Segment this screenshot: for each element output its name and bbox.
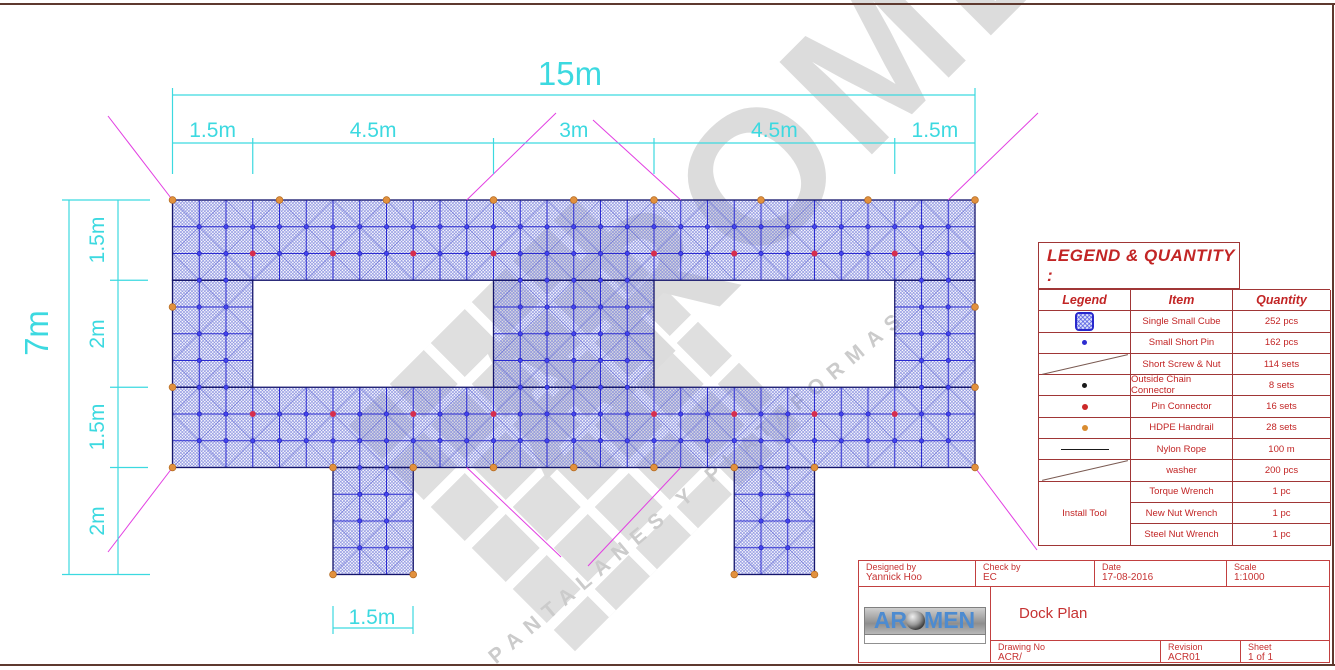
small-short-pin bbox=[759, 465, 763, 469]
small-short-pin bbox=[893, 225, 897, 229]
diag-icon bbox=[1042, 460, 1128, 481]
sheet-border-bottom bbox=[0, 664, 1335, 666]
small-short-pin bbox=[625, 225, 629, 229]
small-short-pin bbox=[812, 439, 816, 443]
legend-header-0: Legend bbox=[1039, 290, 1131, 311]
small-short-pin bbox=[919, 332, 923, 336]
small-short-pin bbox=[652, 439, 656, 443]
small-short-pin bbox=[786, 225, 790, 229]
small-short-pin bbox=[759, 225, 763, 229]
hdpe-handrail-point bbox=[811, 464, 818, 471]
small-short-pin bbox=[384, 439, 388, 443]
hdpe-handrail-point bbox=[383, 197, 390, 204]
small-short-pin bbox=[518, 358, 522, 362]
small-short-pin bbox=[465, 412, 469, 416]
legend-qty: 8 sets bbox=[1233, 375, 1331, 396]
drawing-no-label: Drawing No bbox=[998, 642, 1160, 652]
legend-table: LegendItemQuantitySingle Small Cube252 p… bbox=[1038, 289, 1330, 546]
small-short-pin bbox=[197, 439, 201, 443]
dimension-label: 3m bbox=[559, 119, 588, 142]
small-short-pin bbox=[786, 251, 790, 255]
legend-symbol-cube bbox=[1039, 311, 1131, 332]
small-short-pin bbox=[786, 412, 790, 416]
small-short-pin bbox=[786, 439, 790, 443]
legend-qty: 162 pcs bbox=[1233, 333, 1331, 354]
small-short-pin bbox=[598, 305, 602, 309]
small-short-pin bbox=[518, 278, 522, 282]
hdpe-handrail-point bbox=[972, 304, 979, 311]
pin-connector bbox=[250, 411, 256, 417]
small-short-pin bbox=[277, 225, 281, 229]
small-short-pin bbox=[331, 225, 335, 229]
small-short-pin bbox=[759, 492, 763, 496]
small-short-pin bbox=[197, 385, 201, 389]
hdpe-handrail-point bbox=[731, 571, 738, 578]
designed-by-label: Designed by bbox=[866, 562, 975, 572]
legend-qty: 200 pcs bbox=[1233, 460, 1331, 481]
small-short-pin bbox=[224, 332, 228, 336]
small-short-pin bbox=[358, 225, 362, 229]
small-short-pin bbox=[572, 278, 576, 282]
legend-symbol-h-line bbox=[1039, 439, 1131, 460]
small-short-pin bbox=[277, 412, 281, 416]
small-short-pin bbox=[411, 225, 415, 229]
title-block-info-row: Designed by Yannick Hoo Check by EC Date… bbox=[859, 561, 1329, 587]
small-short-pin bbox=[358, 546, 362, 550]
small-short-pin bbox=[545, 305, 549, 309]
small-short-pin bbox=[839, 439, 843, 443]
dimension-label: 7m bbox=[18, 310, 55, 356]
small-short-pin bbox=[786, 465, 790, 469]
title-block-main: Dock Plan Drawing No ACR/ Revision ACR01… bbox=[991, 587, 1329, 663]
check-by-cell: Check by EC bbox=[976, 561, 1095, 586]
orange-dot-icon bbox=[1082, 425, 1088, 431]
small-short-pin bbox=[251, 439, 255, 443]
small-short-pin bbox=[224, 305, 228, 309]
small-short-pin bbox=[438, 439, 442, 443]
title-block-bottom-row: Drawing No ACR/ Revision ACR01 Sheet 1 o… bbox=[991, 641, 1329, 663]
small-short-pin bbox=[518, 385, 522, 389]
small-short-pin bbox=[197, 412, 201, 416]
h-line-icon bbox=[1061, 449, 1109, 450]
legend-item: Outside Chain Connector bbox=[1131, 375, 1233, 396]
legend-qty: 1 pc bbox=[1233, 503, 1331, 524]
small-short-pin bbox=[197, 251, 201, 255]
pin-connector bbox=[892, 411, 898, 417]
small-short-pin bbox=[705, 412, 709, 416]
small-short-pin bbox=[224, 278, 228, 282]
small-short-pin bbox=[545, 358, 549, 362]
legend-qty: 16 sets bbox=[1233, 396, 1331, 417]
small-short-pin bbox=[679, 251, 683, 255]
designed-by-value: Yannick Hoo bbox=[866, 572, 975, 583]
pin-connector bbox=[491, 251, 497, 257]
small-short-pin bbox=[224, 225, 228, 229]
legend-symbol-diag bbox=[1039, 354, 1131, 375]
small-short-pin bbox=[946, 385, 950, 389]
small-short-pin bbox=[358, 465, 362, 469]
small-short-pin bbox=[759, 251, 763, 255]
small-short-pin bbox=[572, 358, 576, 362]
small-short-pin bbox=[866, 251, 870, 255]
small-short-pin bbox=[893, 439, 897, 443]
small-short-pin bbox=[679, 439, 683, 443]
legend-symbol-blue-dot bbox=[1039, 333, 1131, 354]
small-short-pin bbox=[679, 412, 683, 416]
small-short-pin bbox=[545, 439, 549, 443]
small-short-pin bbox=[625, 385, 629, 389]
small-short-pin bbox=[384, 519, 388, 523]
small-short-pin bbox=[572, 332, 576, 336]
legend-symbol-install-tool: Install Tool bbox=[1039, 482, 1131, 546]
small-short-pin bbox=[545, 225, 549, 229]
small-short-pin bbox=[545, 278, 549, 282]
date-cell: Date 17-08-2016 bbox=[1095, 561, 1227, 586]
legend-qty: 252 pcs bbox=[1233, 311, 1331, 332]
small-short-pin bbox=[572, 225, 576, 229]
pin-connector bbox=[330, 411, 336, 417]
small-short-pin bbox=[946, 278, 950, 282]
small-short-pin bbox=[411, 439, 415, 443]
small-short-pin bbox=[384, 465, 388, 469]
legend-title: LEGEND & QUANTITY : bbox=[1038, 242, 1240, 289]
dimension-label: 4.5m bbox=[751, 119, 798, 142]
small-short-pin bbox=[919, 251, 923, 255]
dimension-label: 1.5m bbox=[86, 404, 109, 451]
small-short-pin bbox=[759, 439, 763, 443]
small-short-pin bbox=[946, 305, 950, 309]
legend-item: New Nut Wrench bbox=[1131, 503, 1233, 524]
small-short-pin bbox=[277, 251, 281, 255]
small-short-pin bbox=[625, 412, 629, 416]
small-short-pin bbox=[759, 519, 763, 523]
small-short-pin bbox=[197, 305, 201, 309]
logo-text-left: AR bbox=[874, 609, 907, 632]
logo-text-right: MEN bbox=[924, 609, 975, 632]
sheet-cell: Sheet 1 of 1 bbox=[1241, 641, 1329, 663]
check-by-value: EC bbox=[983, 572, 1094, 583]
small-short-pin bbox=[625, 439, 629, 443]
small-short-pin bbox=[384, 546, 388, 550]
pin-connector bbox=[491, 411, 497, 417]
small-short-pin bbox=[705, 251, 709, 255]
small-short-pin bbox=[384, 251, 388, 255]
small-short-pin bbox=[705, 439, 709, 443]
small-short-pin bbox=[197, 278, 201, 282]
logo-cell: ARMEN bbox=[859, 587, 991, 663]
small-short-pin bbox=[946, 358, 950, 362]
legend-item: Nylon Rope bbox=[1131, 439, 1233, 460]
hdpe-handrail-point bbox=[490, 464, 497, 471]
small-short-pin bbox=[866, 439, 870, 443]
pin-connector bbox=[410, 251, 416, 257]
small-short-pin bbox=[438, 225, 442, 229]
legend-qty: 100 m bbox=[1233, 439, 1331, 460]
small-short-pin bbox=[946, 412, 950, 416]
diag-icon bbox=[1042, 354, 1128, 375]
sheet-border-top bbox=[0, 3, 1335, 5]
legend-item: Single Small Cube bbox=[1131, 311, 1233, 332]
cube-icon bbox=[1075, 312, 1094, 331]
hdpe-handrail-point bbox=[570, 197, 577, 204]
sheet-label: Sheet bbox=[1248, 642, 1329, 652]
small-short-pin bbox=[545, 251, 549, 255]
hdpe-handrail-point bbox=[169, 384, 176, 391]
hdpe-handrail-point bbox=[758, 197, 765, 204]
small-short-pin bbox=[598, 278, 602, 282]
legend-item: Small Short Pin bbox=[1131, 333, 1233, 354]
logo-underline-strip bbox=[864, 635, 986, 644]
date-value: 17-08-2016 bbox=[1102, 572, 1226, 583]
red-dot-icon bbox=[1082, 404, 1088, 410]
hdpe-handrail-point bbox=[330, 571, 337, 578]
small-short-pin bbox=[839, 251, 843, 255]
cad-sheet: { "watermark": { "brand": "AROMEN", "tag… bbox=[0, 0, 1335, 670]
small-short-pin bbox=[812, 225, 816, 229]
small-short-pin bbox=[197, 225, 201, 229]
small-short-pin bbox=[197, 358, 201, 362]
legend-qty: 114 sets bbox=[1233, 354, 1331, 375]
revision-label: Revision bbox=[1168, 642, 1240, 652]
dimension-label: 1.5m bbox=[189, 119, 236, 142]
small-short-pin bbox=[518, 412, 522, 416]
small-short-pin bbox=[491, 225, 495, 229]
drawing-title: Dock Plan bbox=[991, 587, 1329, 641]
small-short-pin bbox=[304, 225, 308, 229]
pin-connector bbox=[250, 251, 256, 257]
pin-connector bbox=[731, 251, 737, 257]
legend-item: Short Screw & Nut bbox=[1131, 354, 1233, 375]
check-by-label: Check by bbox=[983, 562, 1094, 572]
sheet-border-right bbox=[1332, 3, 1334, 666]
hdpe-handrail-point bbox=[972, 197, 979, 204]
small-short-pin bbox=[358, 439, 362, 443]
small-short-pin bbox=[919, 385, 923, 389]
revision-value: ACR01 bbox=[1168, 652, 1240, 663]
pin-connector bbox=[330, 251, 336, 257]
small-short-pin bbox=[598, 358, 602, 362]
small-short-pin bbox=[866, 412, 870, 416]
small-short-pin bbox=[304, 412, 308, 416]
scale-value: 1:1000 bbox=[1234, 572, 1329, 583]
small-short-pin bbox=[358, 492, 362, 496]
title-block: Designed by Yannick Hoo Check by EC Date… bbox=[858, 560, 1330, 663]
small-short-pin bbox=[866, 225, 870, 229]
aromen-logo: ARMEN bbox=[864, 607, 986, 644]
small-short-pin bbox=[277, 439, 281, 443]
small-short-pin bbox=[705, 225, 709, 229]
legend-header-2: Quantity bbox=[1233, 290, 1331, 311]
dimension-label: 15m bbox=[538, 55, 602, 92]
small-short-pin bbox=[598, 332, 602, 336]
small-short-pin bbox=[598, 225, 602, 229]
small-short-pin bbox=[946, 225, 950, 229]
small-short-pin bbox=[786, 546, 790, 550]
designed-by-cell: Designed by Yannick Hoo bbox=[859, 561, 976, 586]
hdpe-handrail-point bbox=[570, 464, 577, 471]
small-short-pin bbox=[919, 305, 923, 309]
aromen-logo-bar: ARMEN bbox=[864, 607, 986, 635]
small-short-pin bbox=[465, 251, 469, 255]
small-short-pin bbox=[625, 358, 629, 362]
hdpe-handrail-point bbox=[490, 197, 497, 204]
small-short-pin bbox=[919, 278, 923, 282]
small-short-pin bbox=[732, 225, 736, 229]
legend-qty: 1 pc bbox=[1233, 524, 1331, 545]
pin-connector bbox=[410, 411, 416, 417]
scale-label: Scale bbox=[1234, 562, 1329, 572]
hdpe-handrail-point bbox=[972, 464, 979, 471]
hdpe-handrail-point bbox=[410, 571, 417, 578]
dimension-label: 1.5m bbox=[912, 119, 959, 142]
legend-qty: 1 pc bbox=[1233, 482, 1331, 503]
small-short-pin bbox=[652, 225, 656, 229]
small-short-pin bbox=[465, 439, 469, 443]
blue-dot-icon bbox=[1082, 340, 1087, 345]
hdpe-handrail-point bbox=[169, 197, 176, 204]
legend-symbol-black-dot bbox=[1039, 375, 1131, 396]
small-short-pin bbox=[331, 439, 335, 443]
hdpe-handrail-point bbox=[651, 197, 658, 204]
small-short-pin bbox=[465, 225, 469, 229]
pin-connector bbox=[892, 251, 898, 257]
small-short-pin bbox=[358, 251, 362, 255]
small-short-pin bbox=[545, 385, 549, 389]
small-short-pin bbox=[786, 519, 790, 523]
dimension-label: 4.5m bbox=[350, 119, 397, 142]
sheet-value: 1 of 1 bbox=[1248, 652, 1329, 663]
small-short-pin bbox=[598, 251, 602, 255]
small-short-pin bbox=[384, 412, 388, 416]
small-short-pin bbox=[946, 251, 950, 255]
small-short-pin bbox=[919, 412, 923, 416]
legend-symbol-orange-dot bbox=[1039, 418, 1131, 439]
small-short-pin bbox=[625, 278, 629, 282]
small-short-pin bbox=[919, 225, 923, 229]
small-short-pin bbox=[625, 305, 629, 309]
small-short-pin bbox=[358, 412, 362, 416]
small-short-pin bbox=[518, 305, 522, 309]
small-short-pin bbox=[839, 412, 843, 416]
legend-symbol-red-dot bbox=[1039, 396, 1131, 417]
small-short-pin bbox=[919, 358, 923, 362]
hdpe-handrail-point bbox=[811, 571, 818, 578]
small-short-pin bbox=[839, 225, 843, 229]
dimension-label: 1.5m bbox=[86, 217, 109, 264]
small-short-pin bbox=[224, 412, 228, 416]
small-short-pin bbox=[759, 546, 763, 550]
small-short-pin bbox=[545, 412, 549, 416]
small-short-pin bbox=[224, 358, 228, 362]
small-short-pin bbox=[251, 225, 255, 229]
hdpe-handrail-point bbox=[731, 464, 738, 471]
dimension-label: 2m bbox=[86, 319, 109, 348]
small-short-pin bbox=[919, 439, 923, 443]
globe-icon bbox=[906, 611, 925, 630]
small-short-pin bbox=[224, 251, 228, 255]
date-label: Date bbox=[1102, 562, 1226, 572]
small-short-pin bbox=[304, 251, 308, 255]
small-short-pin bbox=[438, 251, 442, 255]
hdpe-handrail-point bbox=[865, 197, 872, 204]
small-short-pin bbox=[572, 439, 576, 443]
small-short-pin bbox=[598, 385, 602, 389]
small-short-pin bbox=[518, 439, 522, 443]
small-short-pin bbox=[786, 492, 790, 496]
small-short-pin bbox=[197, 332, 201, 336]
small-short-pin bbox=[438, 412, 442, 416]
title-block-main-row: ARMEN Dock Plan Drawing No ACR/ Revision… bbox=[859, 587, 1329, 663]
small-short-pin bbox=[518, 332, 522, 336]
small-short-pin bbox=[224, 385, 228, 389]
dimension-label: 1.5m bbox=[349, 606, 396, 629]
small-short-pin bbox=[572, 412, 576, 416]
legend-item: Steel Nut Wrench bbox=[1131, 524, 1233, 545]
hdpe-handrail-point bbox=[169, 304, 176, 311]
small-short-pin bbox=[732, 439, 736, 443]
small-short-pin bbox=[679, 225, 683, 229]
revision-cell: Revision ACR01 bbox=[1161, 641, 1241, 663]
small-short-pin bbox=[358, 519, 362, 523]
hdpe-handrail-point bbox=[169, 464, 176, 471]
hdpe-handrail-point bbox=[972, 384, 979, 391]
small-short-pin bbox=[572, 251, 576, 255]
small-short-pin bbox=[598, 412, 602, 416]
hdpe-handrail-point bbox=[276, 197, 283, 204]
hdpe-handrail-point bbox=[330, 464, 337, 471]
small-short-pin bbox=[946, 332, 950, 336]
hdpe-handrail-point bbox=[651, 464, 658, 471]
small-short-pin bbox=[946, 439, 950, 443]
legend-item: washer bbox=[1131, 460, 1233, 481]
legend-panel: LEGEND & QUANTITY : LegendItemQuantitySi… bbox=[1038, 242, 1330, 546]
legend-item: HDPE Handrail bbox=[1131, 418, 1233, 439]
pin-connector bbox=[731, 411, 737, 417]
legend-header-1: Item bbox=[1131, 290, 1233, 311]
pin-connector bbox=[651, 251, 657, 257]
drawing-no-cell: Drawing No ACR/ bbox=[991, 641, 1161, 663]
legend-item: Torque Wrench bbox=[1131, 482, 1233, 503]
small-short-pin bbox=[598, 439, 602, 443]
small-short-pin bbox=[572, 305, 576, 309]
small-short-pin bbox=[518, 225, 522, 229]
pin-connector bbox=[651, 411, 657, 417]
small-short-pin bbox=[491, 439, 495, 443]
hdpe-handrail-point bbox=[410, 464, 417, 471]
small-short-pin bbox=[545, 332, 549, 336]
small-short-pin bbox=[304, 439, 308, 443]
pin-connector bbox=[812, 411, 818, 417]
small-short-pin bbox=[759, 412, 763, 416]
legend-item: Pin Connector bbox=[1131, 396, 1233, 417]
small-short-pin bbox=[384, 225, 388, 229]
dimension-label: 2m bbox=[86, 506, 109, 535]
legend-qty: 28 sets bbox=[1233, 418, 1331, 439]
small-short-pin bbox=[518, 251, 522, 255]
small-short-pin bbox=[572, 385, 576, 389]
drawing-no-value: ACR/ bbox=[998, 652, 1160, 663]
small-short-pin bbox=[625, 251, 629, 255]
black-dot-icon bbox=[1082, 383, 1087, 388]
small-short-pin bbox=[384, 492, 388, 496]
legend-symbol-diag bbox=[1039, 460, 1131, 481]
scale-cell: Scale 1:1000 bbox=[1227, 561, 1329, 586]
small-short-pin bbox=[625, 332, 629, 336]
small-short-pin bbox=[224, 439, 228, 443]
pin-connector bbox=[812, 251, 818, 257]
